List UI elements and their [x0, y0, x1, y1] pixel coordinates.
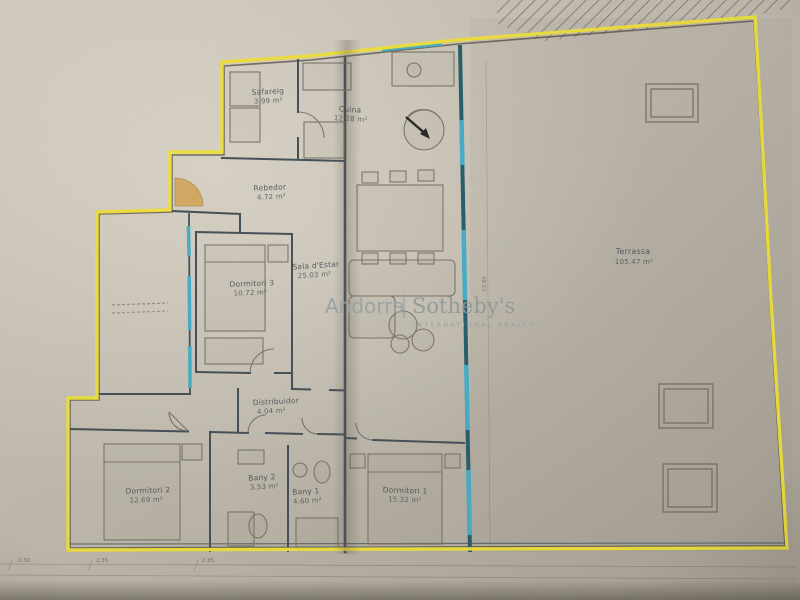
photo-vignette: [0, 0, 800, 600]
floor-plan-canvas: Safareig 3.99 m² Cuina 12.28 m² Rebedor …: [0, 0, 800, 600]
floor-plan-photo: Safareig 3.99 m² Cuina 12.28 m² Rebedor …: [0, 0, 800, 600]
